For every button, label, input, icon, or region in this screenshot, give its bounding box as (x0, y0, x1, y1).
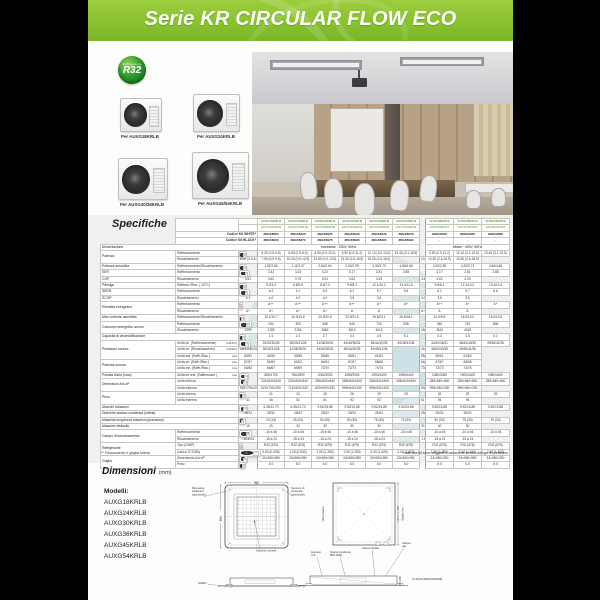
side-view-drawing: Soffitto (198, 578, 305, 588)
unit-cell: °C DB (239, 430, 252, 437)
val-cell: 998×940×330 (366, 385, 393, 391)
val-cell: 15.50 (2.6-18.0) (454, 257, 482, 263)
photo-chair (389, 179, 410, 211)
photo-chair (354, 183, 375, 215)
unit-cell: kg (239, 462, 246, 469)
photo-projector (352, 78, 367, 87)
svg-text:(opzionale): (opzionale) (192, 492, 206, 496)
model-int-cell: AUXG45KRLB (366, 219, 393, 225)
sub-cell: Peso (176, 462, 239, 468)
val-cell: 245×840×840 (285, 379, 312, 385)
val-cell: 2.88 (482, 270, 510, 276)
val-cell: 998×940×330 (426, 385, 454, 391)
val-cell: 64/64 (420, 359, 426, 365)
specs-section: Specifiche ModelloUnità int.AUXG18KRLBAU… (88, 215, 513, 463)
val-cell: 9.52/15.88 (482, 404, 510, 410)
unit-cell (239, 302, 243, 309)
footnote-right: I dati tecnici sono soggetti a variazion… (403, 451, 508, 455)
unit-cell: kg (239, 392, 246, 399)
r32-refrigerant-badge: Refrigerante R32 (118, 56, 146, 84)
svg-text:Soffitto: Soffitto (198, 581, 207, 585)
val-cell: 5.20 (0.9-5.6) (258, 251, 285, 257)
photo-column (385, 104, 400, 184)
svg-text:① AUXG18/22/24KRLB: ① AUXG18/22/24KRLB (412, 577, 442, 581)
page-title: Serie KR CIRCULAR FLOW ECO (88, 0, 513, 30)
badge-refrigerante-label: Refrigerante (118, 56, 146, 66)
model-items: AUXG18KRLBAUXG24KRLBAUXG30KRLBAUXG36KRLB… (104, 498, 147, 563)
model-list: Modelli: AUXG18KRLBAUXG24KRLBAUXG30KRLBA… (104, 487, 147, 563)
model-est-cell: AOYG36KATA (426, 225, 454, 231)
grp-cell: Etichetta energetica (101, 302, 176, 315)
svg-text:Unità interna: Unità interna (321, 506, 325, 521)
val-cell: -15 a 24 (420, 436, 426, 442)
val-cell: 838 (482, 321, 510, 327)
val-cell: 10.00 (0.9-12.5) (285, 257, 312, 263)
outdoor-unit-image-auxg24 (193, 94, 240, 132)
outdoor-unit-image-auxg30-36 (118, 158, 168, 200)
val-cell: 5.0 (258, 462, 285, 468)
photo-ceiling-light (270, 60, 362, 70)
model-int-cell: AUXG24KRLB (285, 219, 312, 225)
unit-cell: W/W (239, 289, 250, 296)
val-cell: 830×900×330 (420, 385, 426, 391)
grp-cell: Campo di funzionamento (101, 430, 176, 443)
grp-cell: Peso (101, 391, 176, 404)
val-cell: 288×840×840 (482, 379, 510, 385)
model-list-item: AUXG18KRLB (104, 498, 147, 509)
val-cell: 12.10 (3.0-13.0) (454, 251, 482, 257)
svg-text:gas: gas (402, 545, 407, 548)
val-cell: A+ (482, 302, 510, 308)
product-caption: Per AUXG18KRLB (97, 134, 183, 139)
dimensions-title-text: Dimensioni (102, 466, 156, 477)
photo-chair (466, 190, 481, 209)
photo-chair (323, 178, 344, 210)
model-list-item: AUXG36KRLB (104, 530, 147, 541)
model-list-item: AUXG30KRLB (104, 519, 147, 530)
outdoor-unit-image-auxg45-54 (192, 152, 249, 199)
spec-row: PotenzaRaffrescamentokW5.20 (0.9-5.6)6.8… (101, 251, 510, 257)
val-cell: A+ (420, 308, 426, 314)
val-cell: 75 (30) (482, 417, 510, 423)
showroom-photo (252, 52, 513, 215)
catalog-page: Serie KR CIRCULAR FLOW ECO Refrigerante … (88, 0, 513, 600)
model-int-cell: AUXG54KRLB (393, 219, 420, 225)
grp-cell: Potenza (101, 251, 176, 264)
top-view-drawing: □860 fra 950 Quadro foro Unità interna (321, 483, 405, 545)
val-cell: 6.0 (312, 462, 339, 468)
val-cell: 288×840×840 (393, 379, 420, 385)
screenshot-stage: Serie KR CIRCULAR FLOW ECO Refrigerante … (0, 0, 600, 600)
product-caption: Per AUXG24KRLB (173, 134, 259, 139)
svg-text:Accesso schede: Accesso schede (256, 549, 277, 553)
val-cell: 13.50 (2.5-15.5) (339, 257, 366, 263)
unit-cell: kW (239, 251, 247, 258)
dimensions-unit-text: (mm) (159, 470, 172, 476)
val-cell: 620×790×290 (258, 385, 285, 391)
model-list-item: AUXG45KRLB (104, 541, 147, 552)
val-cell: 5.0 (285, 462, 312, 468)
side-view-connections-drawing: Ingresso cavi Scarico condensa Ø25 (Ø32)… (298, 541, 442, 586)
photo-curtain (474, 104, 513, 176)
val-cell: 7.50 (0.9-9.5) (258, 257, 285, 263)
spec-row: GrigliaDimensione AxLxPmm33×950×95033×95… (101, 456, 510, 462)
photo-ceiling-light (400, 57, 484, 66)
val-cell: 542×790×290 (239, 385, 258, 391)
val-cell: 49/45/41/36 (482, 340, 510, 346)
val-cell: 288×840×840 (366, 379, 393, 385)
svg-text:950: 950 (219, 516, 223, 522)
svg-text:Ø25 (Ø32): Ø25 (Ø32) (330, 553, 342, 557)
val-cell: 10.80 (0.9-13.5) (312, 257, 339, 263)
model-int-cell: AUXG45KRLB (454, 219, 482, 225)
val-cell: 3.61 (420, 276, 426, 282)
model-list-header: Modelli: (104, 487, 147, 498)
badge-r32-label: R32 (118, 66, 146, 76)
model-est-cell: AOYG24KBTB (285, 225, 312, 231)
val-cell: 70/70 (420, 366, 426, 372)
val-cell: 6.0 (366, 462, 393, 468)
val-cell: 10.80 (0.9-13.5) (420, 257, 426, 263)
val-cell: 55/58 (420, 353, 426, 359)
model-list-item: AUXG24KRLB (104, 509, 147, 520)
grp-cell: Pressione sonora (101, 340, 176, 359)
sub-cell: Unità int. (Raffrescamento)A/M/B/Q (176, 340, 239, 346)
svg-text:950: 950 (254, 481, 260, 485)
svg-text:295 (298): 295 (298) (400, 576, 402, 586)
unit-cell: mm (239, 405, 248, 412)
svg-text:□860 fra 950: □860 fra 950 (396, 506, 400, 522)
model-int-cell: AUXG54KRLB (482, 219, 510, 225)
val-cell: 44/40/36/31 (420, 347, 426, 353)
spec-row: ModelloUnità int.AUXG18KRLBAUXG24KRLBAUX… (101, 219, 510, 225)
val-cell: 25/32 (420, 411, 426, 417)
model-int-cell: AUXG30KRLB (312, 219, 339, 225)
val-cell: 288×840×840 (312, 379, 339, 385)
unit-cell: W/W (239, 270, 250, 277)
val-cell: 13.40 (3.1-15.5) (482, 251, 510, 257)
model-est-cell: AOYG18KBTB (258, 225, 285, 231)
val-cell: 6.0 (426, 462, 454, 468)
val-cell: 5.6 (482, 289, 510, 295)
val-cell: 13.50 (2.5-15.5) (426, 257, 454, 263)
photo-wall-panel (330, 108, 384, 172)
unit-cell: dB(A) (239, 340, 251, 347)
unit-cell: mm (239, 379, 248, 386)
model-est-cell: AOYG30KBTB (312, 225, 339, 231)
val-cell: 6.0 (482, 462, 510, 468)
product-caption: Per AUXG45/54KRLB (177, 201, 263, 206)
val-cell: 998×940×330 (454, 385, 482, 391)
outdoor-unit-image-auxg18 (120, 98, 162, 132)
val-cell: -10 a 46 (482, 430, 510, 436)
unit-cell: kWh/a (239, 321, 252, 328)
val-cell: 4.0 (420, 295, 426, 301)
svg-text:cavi: cavi (311, 553, 316, 557)
val-cell: 716×900×330 (285, 385, 312, 391)
product-caption: Per AUXG30/36KRLB (99, 202, 185, 207)
val-cell: 9.50 (0.9-11.2) (426, 251, 454, 257)
spec-table: ModelloUnità int.AUXG18KRLBAUXG24KRLBAUX… (100, 218, 510, 469)
grp-cell: Dimensioni AxLxP (101, 379, 176, 392)
val-cell: 13.40 (3.1-15.5) (393, 251, 420, 257)
model-int-cell: AUXG36KRLB (426, 219, 454, 225)
dimension-drawing: 950 950 Ricevente infrarossi (opzionale)… (190, 480, 513, 600)
val-cell: 9.50 (0.9-11.2) (339, 251, 366, 257)
val-cell: 6.0 (393, 462, 420, 468)
model-est-cell: AOYG45KATA (454, 225, 482, 231)
model-est-cell: AOYG54KATA (482, 225, 510, 231)
val-cell: 288×840×840 (454, 379, 482, 385)
footnote-left: ** Filocomando e griglia inclusi (101, 451, 150, 455)
model-int-cell: AUXG36KRLB (339, 219, 366, 225)
photo-chair (491, 188, 506, 207)
val-cell: 245×840×840 (258, 379, 285, 385)
model-est-cell: AOYG54KBTB (393, 225, 420, 231)
blank-cell (101, 219, 176, 245)
val-cell: 6.80 (0.9-8.0) (285, 251, 312, 257)
model-list-item: AUXG54KRLB (104, 552, 147, 563)
val-cell: 288×840×840 (339, 379, 366, 385)
val-cell: 288×840×840 (426, 379, 454, 385)
front-view-drawing: 950 950 Ricevente infrarossi (opzionale)… (192, 481, 305, 553)
sub-cell: Unità int. (Riscaldamento)A/M/B/Q (176, 347, 239, 353)
modello-cell: Modello (176, 219, 239, 232)
val-cell: 6.0 (339, 462, 366, 468)
svg-text:Attacco liquido: Attacco liquido (362, 546, 379, 550)
svg-text:Quadro foro: Quadro foro (402, 507, 405, 521)
dimensions-title: Dimensioni (mm) (102, 466, 172, 477)
grp-cell: Consumo energetico annuo (101, 321, 176, 334)
val-cell: 8.50 (0.9-10.2) (312, 251, 339, 257)
val-cell: 830×900×330 (312, 385, 339, 391)
val-cell: 29 (482, 391, 510, 397)
grp-cell: Potenza sonora (101, 359, 176, 372)
header-banner: Serie KR CIRCULAR FLOW ECO (88, 0, 513, 41)
val-cell: 998×940×330 (339, 385, 366, 391)
unit-cell: m (239, 418, 246, 425)
val-cell: 2684 (420, 327, 426, 333)
val-cell: 12.10 (3.0-13.0) (366, 251, 393, 257)
model-est-cell: AOYG36KBTB (339, 225, 366, 231)
val-cell: 15.50 (2.6-18.0) (366, 257, 393, 263)
model-est-cell: AOYG45KBTB (366, 225, 393, 231)
photo-wall-left (252, 104, 314, 182)
val-cell: 6.0 (454, 462, 482, 468)
svg-text:(opzionale): (opzionale) (291, 492, 305, 496)
model-int-cell: AUXG18KRLB (258, 219, 285, 225)
spec-row: Dimensioni AxLxPUnità internamm245×840×8… (101, 379, 510, 385)
